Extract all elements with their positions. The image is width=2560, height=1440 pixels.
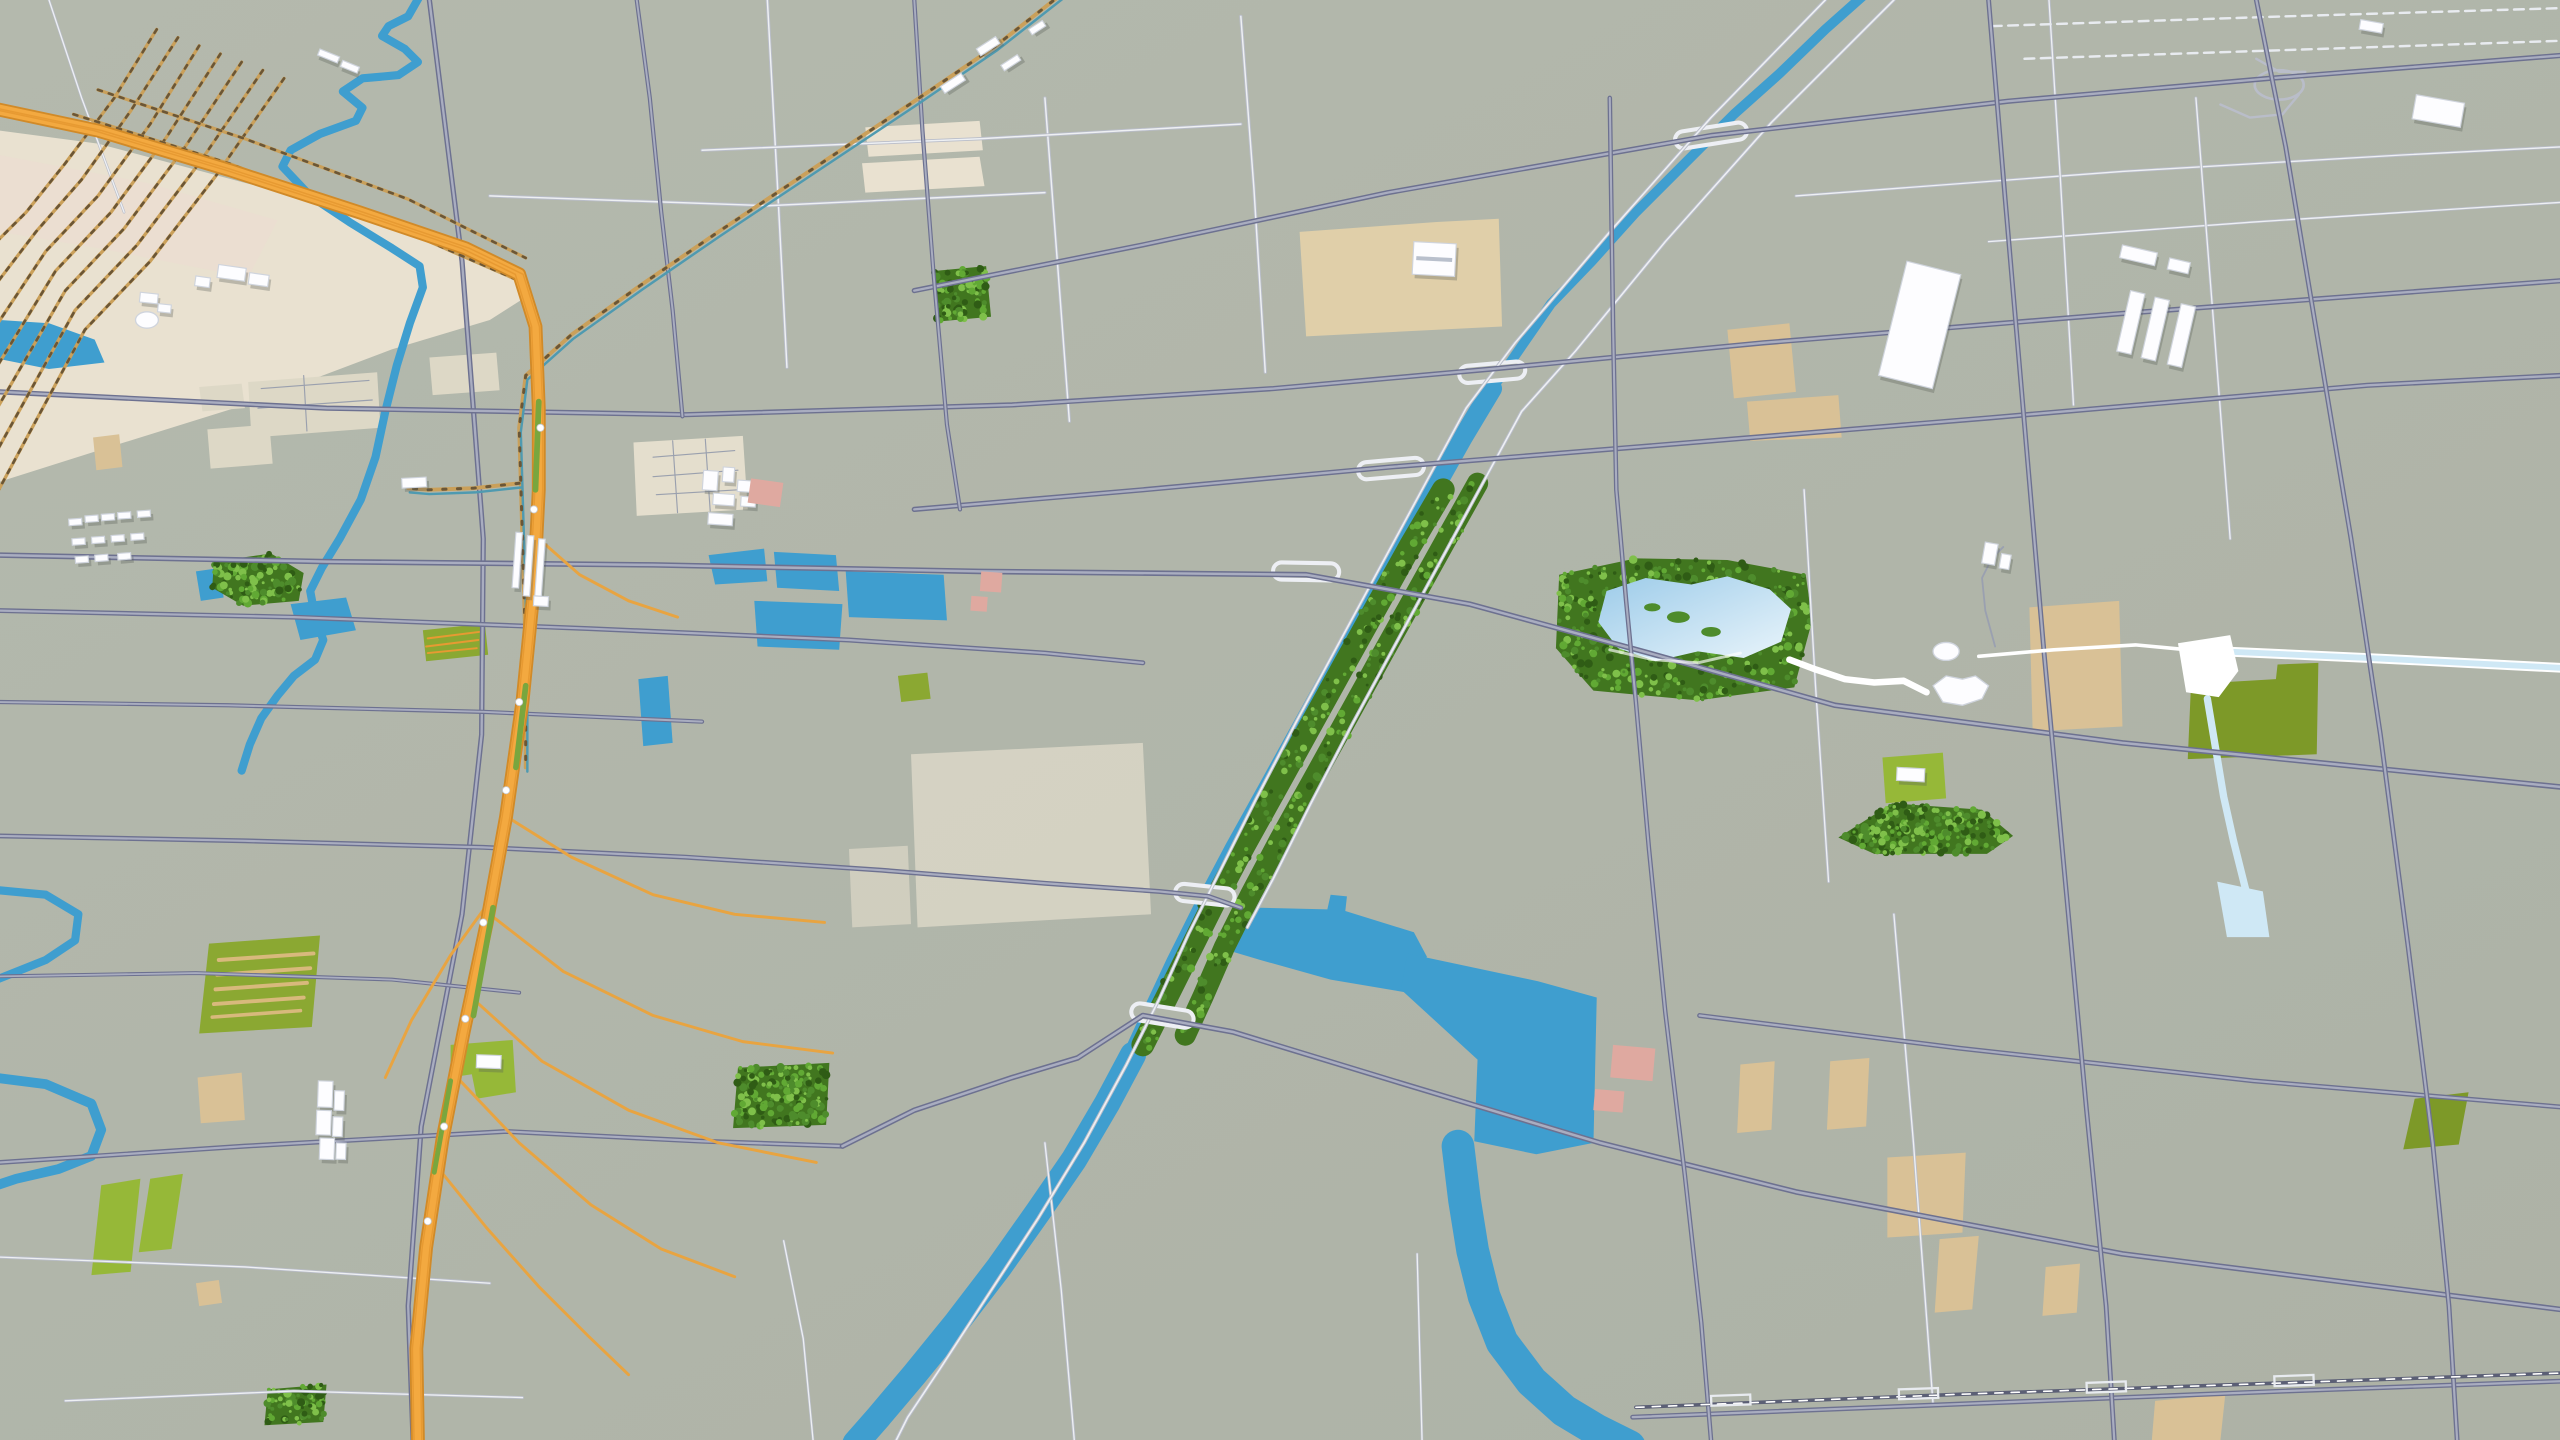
tree-icon: [1890, 851, 1895, 856]
tree-icon: [1589, 574, 1593, 578]
tree-icon: [268, 586, 271, 589]
tree-icon: [1338, 710, 1346, 718]
tree-icon: [1414, 554, 1419, 559]
tree-icon: [825, 1097, 829, 1101]
tree-icon: [1450, 521, 1453, 524]
tree-icon: [1421, 531, 1425, 535]
tree-icon: [1308, 720, 1316, 728]
tree-icon: [1254, 886, 1259, 891]
tree-icon: [819, 1102, 823, 1106]
tree-icon: [1786, 590, 1794, 598]
tree-icon: [1896, 838, 1899, 841]
tree-icon: [1753, 686, 1759, 692]
tree-icon: [213, 566, 216, 569]
tree-icon: [1675, 564, 1678, 567]
tree-icon: [1362, 638, 1368, 644]
tree-icon: [776, 1119, 782, 1125]
tree-icon: [1796, 584, 1799, 587]
tree-icon: [747, 1065, 754, 1072]
tree-icon: [307, 1384, 313, 1390]
tree-icon: [1615, 679, 1621, 685]
tree-icon: [1603, 567, 1606, 570]
tree-icon: [1805, 624, 1811, 630]
tree-icon: [1634, 573, 1638, 577]
tree-icon: [1192, 1000, 1197, 1005]
tree-icon: [1945, 835, 1950, 840]
tree-icon: [771, 1094, 776, 1099]
tree-icon: [1303, 716, 1308, 721]
building-farm: [702, 470, 721, 495]
pond-cluster-2: [774, 552, 839, 591]
tree-icon: [744, 1069, 747, 1072]
tree-icon: [269, 1415, 275, 1421]
tree-icon: [1939, 812, 1943, 816]
tree-icon: [1989, 830, 1995, 836]
tree-icon: [1387, 593, 1395, 601]
tree-icon: [1947, 825, 1954, 832]
tree-icon: [1987, 820, 1991, 824]
tree-icon: [1965, 838, 1972, 845]
tree-icon: [1448, 494, 1454, 500]
map-canvas[interactable]: [0, 0, 2560, 1440]
tan-field-left-2: [198, 1073, 245, 1124]
tree-icon: [1268, 840, 1273, 845]
tree-icon: [1579, 577, 1585, 583]
tree-icon: [1574, 642, 1578, 646]
tree-icon: [1656, 690, 1661, 695]
tree-icon: [1594, 646, 1599, 651]
vehicle: [537, 424, 544, 431]
tree-icon: [1861, 839, 1865, 843]
tree-icon: [1198, 980, 1204, 986]
tree-icon: [1894, 847, 1902, 855]
tree-icon: [794, 1095, 800, 1101]
tree-icon: [1381, 599, 1388, 606]
tree-icon: [962, 299, 968, 305]
tree-icon: [270, 1407, 274, 1411]
warehouse-row: [316, 1110, 334, 1139]
tree-icon: [777, 1105, 784, 1112]
tree-icon: [1648, 570, 1654, 576]
tree-icon: [1789, 671, 1793, 675]
tree-icon: [1313, 772, 1321, 780]
tree-icon: [1707, 560, 1711, 564]
tree-icon: [1197, 1010, 1205, 1018]
tree-icon: [1849, 836, 1857, 844]
tree-icon: [245, 590, 250, 595]
tree-icon: [1665, 673, 1672, 680]
tree-icon: [1262, 873, 1270, 881]
tree-icon: [1842, 832, 1850, 840]
tree-icon: [1978, 811, 1986, 819]
tree-icon: [228, 588, 232, 592]
tree-icon: [1360, 644, 1364, 648]
tree-icon: [1366, 684, 1369, 687]
tree-icon: [1441, 507, 1445, 511]
tree-icon: [1206, 953, 1214, 961]
tree-icon: [761, 1082, 765, 1086]
tree-icon: [242, 596, 249, 603]
tree-icon: [1677, 568, 1680, 571]
vehicle: [462, 1015, 469, 1022]
tree-icon: [273, 566, 278, 571]
tree-icon: [1920, 819, 1925, 824]
warehouse-row: [317, 1081, 335, 1112]
tree-icon: [783, 1087, 791, 1095]
tree-icon: [1993, 819, 2001, 827]
tree-icon: [1363, 673, 1368, 678]
tree-icon: [1354, 695, 1357, 698]
tree-icon: [974, 300, 982, 308]
tree-icon: [1588, 596, 1594, 602]
tree-icon: [1377, 643, 1381, 647]
tree-icon: [1380, 576, 1385, 581]
tree-icon: [288, 577, 296, 585]
tree-icon: [1664, 682, 1671, 689]
tree-icon: [1327, 712, 1330, 715]
tree-icon: [1970, 833, 1976, 839]
vehicle: [440, 1123, 447, 1130]
vehicle: [424, 1218, 431, 1225]
tree-icon: [267, 1398, 272, 1403]
tree-icon: [779, 1098, 784, 1103]
tree-icon: [1427, 561, 1434, 568]
tree-icon: [1297, 793, 1302, 798]
tree-icon: [1925, 833, 1929, 837]
tree-icon: [1729, 694, 1732, 697]
tree-icon: [1289, 804, 1294, 809]
tree-icon: [1300, 744, 1307, 751]
tree-icon: [1605, 587, 1608, 590]
tree-icon: [1263, 810, 1269, 816]
tree-icon: [1964, 813, 1971, 820]
tree-icon: [1767, 668, 1775, 676]
tree-icon: [1293, 823, 1297, 827]
tree-icon: [1922, 841, 1927, 846]
tree-icon: [273, 579, 281, 587]
tree-icon: [1784, 642, 1792, 650]
tree-icon: [252, 591, 260, 599]
tree-icon: [257, 572, 264, 579]
tree-icon: [1955, 847, 1961, 853]
tree-icon: [1230, 918, 1234, 922]
dome-park-east: [1933, 642, 1959, 660]
tree-icon: [1997, 835, 2005, 843]
tree-icon: [738, 1093, 745, 1100]
tree-icon: [1706, 692, 1713, 699]
tree-icon: [1394, 623, 1401, 630]
tree-icon: [1569, 570, 1574, 575]
tree-icon: [1584, 619, 1590, 625]
tree-icon: [295, 1416, 300, 1421]
tree-icon: [1433, 522, 1437, 526]
estate-block-2: [199, 384, 245, 412]
tree-icon: [1602, 673, 1607, 678]
tree-icon: [788, 1066, 792, 1070]
tree-icon: [1200, 1004, 1204, 1008]
tree-icon: [300, 1384, 305, 1389]
tree-icon: [1891, 834, 1894, 837]
tree-icon: [1145, 1037, 1151, 1043]
tree-icon: [1980, 846, 1983, 849]
tree-icon: [1221, 932, 1227, 938]
tan-field-7: [2042, 1264, 2080, 1316]
tree-icon: [1670, 563, 1674, 567]
tree-icon: [733, 1079, 741, 1087]
tree-icon: [1579, 673, 1583, 677]
tree-icon: [1592, 565, 1597, 570]
tree-icon: [1975, 827, 1979, 831]
tree-icon: [307, 1394, 312, 1399]
tree-icon: [796, 1121, 800, 1125]
vehicle: [480, 919, 487, 926]
tree-icon: [1155, 1037, 1159, 1041]
tree-icon: [1339, 718, 1345, 724]
tree-icon: [740, 1076, 746, 1082]
tree-icon: [1852, 830, 1855, 833]
tree-icon: [959, 270, 966, 277]
tree-icon: [767, 1081, 772, 1086]
tree-icon: [1303, 802, 1307, 806]
tree-icon: [735, 1073, 741, 1079]
tree-icon: [787, 1122, 792, 1127]
tree-icon: [1961, 827, 1965, 831]
tree-icon: [1267, 816, 1273, 822]
tree-icon: [1220, 878, 1226, 884]
tree-icon: [1897, 831, 1902, 836]
tree-icon: [1758, 652, 1762, 656]
tree-icon: [1205, 993, 1212, 1000]
tree-icon: [1662, 573, 1666, 577]
vehicle: [516, 698, 523, 705]
tree-icon: [1735, 567, 1741, 573]
tree-icon: [1223, 952, 1229, 958]
tree-icon: [958, 284, 965, 291]
tree-icon: [1942, 847, 1948, 853]
tree-icon: [1236, 929, 1241, 934]
tree-icon: [1343, 638, 1350, 645]
tree-icon: [319, 1383, 323, 1387]
tree-icon: [982, 300, 987, 305]
tree-icon: [1928, 846, 1935, 853]
tree-icon: [808, 1087, 815, 1094]
tree-icon: [1725, 569, 1732, 576]
tree-icon: [1466, 485, 1473, 492]
tree-icon: [282, 598, 286, 602]
tree-icon: [1288, 764, 1292, 768]
tree-icon: [1890, 829, 1895, 834]
tree-icon: [1718, 560, 1722, 564]
tree-icon: [946, 304, 951, 309]
tree-icon: [1901, 826, 1907, 832]
tree-icon: [1182, 956, 1188, 962]
tree-icon: [1888, 812, 1893, 817]
tree-icon: [1565, 588, 1571, 594]
tree-icon: [250, 577, 258, 585]
tree-icon: [1450, 510, 1456, 516]
tree-icon: [1557, 618, 1562, 623]
tree-icon: [1364, 625, 1372, 633]
tree-icon: [1873, 827, 1881, 835]
tree-icon: [1744, 665, 1752, 673]
tree-icon: [789, 1103, 792, 1106]
station-building: [533, 596, 551, 611]
tree-icon: [1899, 801, 1907, 809]
tree-icon: [301, 1406, 304, 1409]
tree-icon: [744, 1086, 748, 1090]
tree-icon: [1878, 838, 1886, 846]
tree-icon: [806, 1081, 809, 1084]
tree-icon: [1326, 693, 1332, 699]
tree-icon: [1801, 582, 1804, 585]
tree-icon: [953, 310, 957, 314]
tree-icon: [1418, 567, 1423, 572]
tree-icon: [1297, 759, 1300, 762]
tree-icon: [743, 1114, 749, 1120]
tree-icon: [1953, 806, 1959, 812]
tree-icon: [1606, 653, 1614, 661]
tree-icon: [298, 587, 302, 591]
tree-icon: [1371, 617, 1376, 622]
tree-icon: [768, 1110, 775, 1117]
tree-icon: [1653, 571, 1660, 578]
tree-icon: [1946, 811, 1951, 816]
tree-icon: [1564, 578, 1570, 584]
tree-icon: [1379, 658, 1385, 664]
tree-icon: [1895, 826, 1899, 830]
tree-icon: [231, 562, 237, 568]
tree-icon: [747, 1088, 754, 1095]
tree-icon: [1206, 930, 1213, 937]
tree-icon: [1321, 714, 1326, 719]
tree-icon: [1593, 608, 1597, 612]
tree-icon: [1787, 632, 1792, 637]
tree-icon: [1214, 963, 1217, 966]
tree-icon: [1598, 572, 1601, 575]
tan-field-5: [1887, 1153, 1965, 1238]
tree-icon: [1261, 868, 1265, 872]
parking-pad-farm: [748, 478, 784, 507]
tree-icon: [224, 563, 228, 567]
tree-icon: [1672, 677, 1678, 683]
tree-icon: [241, 574, 247, 580]
tree-icon: [1613, 571, 1617, 575]
tree-icon: [1229, 940, 1234, 945]
tree-icon: [1587, 571, 1591, 575]
tree-icon: [266, 568, 274, 576]
tree-icon: [805, 1114, 810, 1119]
tree-icon: [1327, 741, 1330, 744]
tree-icon: [1936, 823, 1940, 827]
tree-icon: [1251, 827, 1254, 830]
tree-icon: [760, 1125, 764, 1129]
tree-icon: [948, 316, 952, 320]
tree-icon: [1774, 586, 1777, 589]
tree-icon: [209, 584, 215, 590]
tree-icon: [757, 1097, 762, 1102]
tree-icon: [1310, 728, 1317, 735]
tree-icon: [1855, 824, 1859, 828]
tree-icon: [764, 1069, 771, 1076]
tree-icon: [804, 1092, 807, 1095]
pond-small-vertical: [638, 676, 672, 746]
tree-icon: [1601, 668, 1604, 671]
tree-icon: [285, 1417, 289, 1421]
tree-icon: [1564, 606, 1571, 613]
tree-icon: [759, 1120, 765, 1126]
tree-icon: [1187, 964, 1195, 972]
tan-field-left-1: [93, 434, 122, 470]
building-on-lawn-left: [476, 1055, 504, 1073]
tree-icon: [1278, 849, 1282, 853]
tree-icon: [789, 1115, 795, 1121]
tree-icon: [1367, 663, 1371, 667]
tree-icon: [1580, 626, 1584, 630]
tree-icon: [761, 1116, 765, 1120]
tree-icon: [1235, 916, 1242, 923]
building-on-lawn-right: [1896, 767, 1927, 786]
tree-icon: [958, 311, 964, 317]
tree-icon: [1433, 552, 1438, 557]
tan-field-topcenter: [1300, 219, 1502, 337]
tree-icon: [1782, 638, 1785, 641]
tree-icon: [1326, 678, 1330, 682]
pond-cluster-4: [754, 601, 842, 650]
tree-icon: [1722, 567, 1725, 570]
tree-icon: [1970, 806, 1977, 813]
building-farm: [712, 493, 737, 510]
tree-icon: [1559, 595, 1567, 603]
tree-icon: [1577, 637, 1581, 641]
tree-icon: [815, 1077, 822, 1084]
building-farmhouse-tan-field: [1412, 242, 1459, 281]
tree-icon: [1327, 751, 1332, 756]
tree-icon: [1244, 847, 1248, 851]
tree-icon: [1972, 839, 1979, 846]
tree-icon: [968, 288, 975, 295]
tree-icon: [1753, 664, 1759, 670]
tree-icon: [1661, 568, 1667, 574]
tree-icon: [1784, 674, 1790, 680]
tree-icon: [1198, 927, 1203, 932]
lawn-tiny: [898, 673, 931, 702]
parking-pad: [970, 596, 987, 612]
tree-icon: [1421, 538, 1427, 544]
tree-icon: [1357, 629, 1363, 635]
tree-icon: [942, 311, 946, 315]
tree-icon: [1912, 838, 1916, 842]
estate-block-4: [429, 353, 499, 395]
tree-icon: [802, 1088, 807, 1093]
tree-icon: [1326, 727, 1334, 735]
tree-icon: [1946, 843, 1950, 847]
building-industrial: [194, 276, 213, 292]
tree-icon: [1431, 500, 1435, 504]
tree-icon: [1284, 813, 1290, 819]
tree-icon: [1243, 856, 1249, 862]
tree-icon: [945, 270, 951, 276]
tree-icon: [1970, 818, 1976, 824]
tree-icon: [1585, 601, 1592, 608]
tree-icon: [1782, 587, 1786, 591]
tree-icon: [779, 1086, 783, 1090]
tree-icon: [1892, 809, 1898, 815]
tree-icon: [1792, 678, 1798, 684]
tree-icon: [748, 1107, 756, 1115]
tree-icon: [1676, 681, 1680, 685]
tree-icon: [772, 1118, 777, 1123]
tree-icon: [1645, 675, 1648, 678]
